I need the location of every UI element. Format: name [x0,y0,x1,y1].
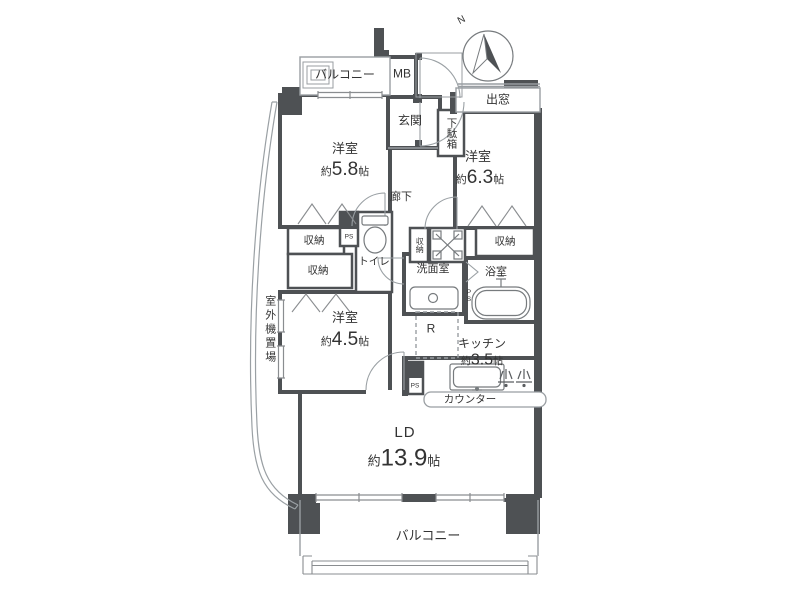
toilet-tank [362,216,388,225]
bedroom3-size-prefix: 約 [321,336,332,348]
entry-porch-outline [416,53,462,97]
bedroom2-size-prefix: 約 [456,174,467,186]
kitchen-size: 約3.5帖 [461,353,503,370]
toilet-label: トイレ [358,256,390,267]
refrigerator-label: R [427,323,436,336]
wall-right [534,108,542,498]
balcony-railing [303,556,537,574]
toilet-bowl [364,227,386,253]
wall-kitchen-left [402,356,408,396]
outdoor-unit-label: 室外機置場 [263,295,275,365]
washroom-label: 洗面室 [417,264,450,276]
vanity-counter [410,287,458,309]
ld-size-unit: 帖 [427,453,440,468]
meter-box-label: MB [393,68,411,81]
kitchen-size-value: 3.5 [471,352,493,369]
bedroom2-size-value: 6.3 [467,167,493,188]
ld-name: LD [394,425,415,441]
kitchen-name: キッチン [458,338,506,351]
bedroom1-size-unit: 帖 [358,166,369,178]
wall-bottom-center [402,494,438,502]
closet-a-label: 収納 [304,235,325,246]
compass [463,31,513,81]
bathroom-label: 浴室 [485,267,507,279]
ld-size-prefix: 約 [368,453,381,468]
bedroom2-door [425,197,457,229]
pipe-space-label-2: PS [465,289,472,303]
bedroom2-name: 洋室 [465,150,491,164]
bedroom3-name: 洋室 [332,311,358,325]
bedroom1-name: 洋室 [332,142,358,156]
floor-plan-canvas: N バルコニー MB 玄関 下駄箱 出窓 洋室 約5.8帖 洋室 約6.3帖 廊… [0,0,800,600]
closet-b-label: 収納 [308,265,329,276]
pipe-space-label-1: PS [345,235,354,242]
bedroom3-size-value: 4.5 [332,329,358,350]
bedroom1-size-value: 5.8 [332,159,358,180]
closet-bedroom2-label: 収納 [495,236,516,247]
ld-size: 約13.9帖 [368,445,441,470]
compass-needle-light [473,34,487,73]
pillar-top-left [282,87,302,115]
pipe-space-label-3: PS [411,384,420,391]
shoe-cabinet-label: 下駄箱 [445,117,456,149]
entrance-label: 玄関 [398,115,422,128]
pipe-space-dark-2 [408,362,423,378]
counter-label: カウンター [444,394,497,405]
bedroom2-size-unit: 帖 [493,174,504,186]
hall-closet-label: 収納 [415,237,423,253]
bedroom3-size: 約4.5帖 [321,330,369,350]
kitchen-size-prefix: 約 [461,357,471,368]
balcony-top-label: バルコニー [315,69,375,82]
kitchen-size-unit: 帖 [493,357,503,368]
bedroom2-size: 約6.3帖 [456,168,504,188]
door-hinge-block-2 [413,94,422,103]
bedroom1-size-prefix: 約 [321,166,332,178]
bedroom3-size-unit: 帖 [358,336,369,348]
corridor-label: 廊下 [390,192,412,204]
pillar-bottom-left [288,494,320,534]
bedroom1-size: 約5.8帖 [321,160,369,180]
refrigerator-space-box [416,312,458,358]
balcony-bottom-label: バルコニー [396,529,461,543]
bay-window-label: 出窓 [486,94,510,107]
ld-size-value: 13.9 [381,444,428,471]
floor-plan-drawing [0,0,800,600]
sink-faucet [475,387,479,391]
pillar-bottom-right [506,494,540,534]
